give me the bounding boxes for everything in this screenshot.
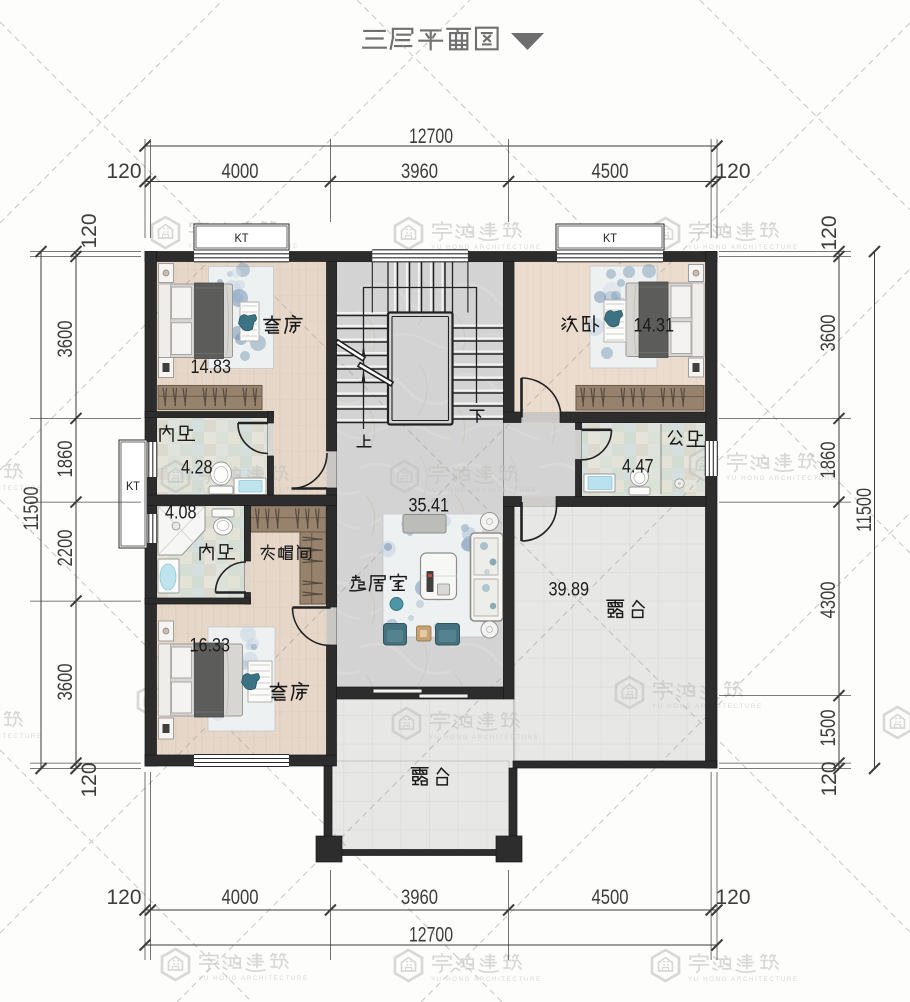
svg-text:YU HONG ARCHITECTURE: YU HONG ARCHITECTURE	[0, 733, 43, 740]
svg-text:3600: 3600	[54, 321, 77, 358]
svg-text:4500: 4500	[592, 160, 629, 183]
svg-text:3960: 3960	[401, 160, 438, 183]
svg-text:3960: 3960	[401, 886, 438, 909]
svg-text:KT: KT	[126, 479, 141, 493]
svg-text:120: 120	[106, 160, 141, 183]
svg-text:YU HONG ARCHITECTURE: YU HONG ARCHITECTURE	[431, 976, 542, 983]
svg-text:120: 120	[715, 160, 750, 183]
svg-text:1860: 1860	[817, 442, 840, 479]
svg-text:11500: 11500	[20, 487, 43, 531]
svg-text:YU HONG ARCHITECTURE: YU HONG ARCHITECTURE	[198, 975, 309, 982]
svg-text:YU HONG ARCHITECTURE: YU HONG ARCHITECTURE	[688, 244, 799, 251]
svg-text:2200: 2200	[54, 530, 77, 567]
svg-text:3600: 3600	[817, 315, 840, 352]
svg-text:35.41: 35.41	[409, 496, 450, 517]
svg-text:YU HONG ARCHITECTURE: YU HONG ARCHITECTURE	[427, 487, 538, 494]
svg-text:4.08: 4.08	[165, 503, 197, 524]
svg-text:14.83: 14.83	[191, 357, 232, 378]
svg-text:1860: 1860	[54, 441, 77, 478]
svg-text:120: 120	[78, 762, 101, 797]
svg-text:16.33: 16.33	[190, 636, 231, 657]
svg-text:120: 120	[818, 761, 841, 796]
svg-text:39.89: 39.89	[549, 580, 590, 601]
svg-text:120: 120	[106, 886, 141, 909]
svg-text:120: 120	[715, 886, 750, 909]
svg-text:KT: KT	[235, 231, 250, 245]
svg-text:14.31: 14.31	[634, 316, 675, 337]
svg-text:4000: 4000	[222, 160, 259, 183]
svg-text:4300: 4300	[817, 582, 840, 619]
svg-text:120: 120	[818, 215, 841, 250]
svg-text:4.47: 4.47	[622, 457, 654, 478]
svg-text:3600: 3600	[54, 664, 77, 701]
svg-text:11500: 11500	[853, 488, 876, 532]
svg-text:1500: 1500	[817, 710, 840, 747]
svg-text:YU HONG ARCHITECTURE: YU HONG ARCHITECTURE	[688, 976, 799, 983]
svg-text:12700: 12700	[409, 924, 453, 947]
svg-text:4500: 4500	[592, 886, 629, 909]
svg-text:KT: KT	[603, 231, 618, 245]
svg-text:120: 120	[78, 213, 101, 248]
svg-text:4000: 4000	[222, 886, 259, 909]
svg-text:4.28: 4.28	[181, 458, 213, 479]
svg-text:12700: 12700	[409, 125, 453, 148]
svg-text:YU HONG ARCHITECTURE: YU HONG ARCHITECTURE	[429, 734, 540, 741]
